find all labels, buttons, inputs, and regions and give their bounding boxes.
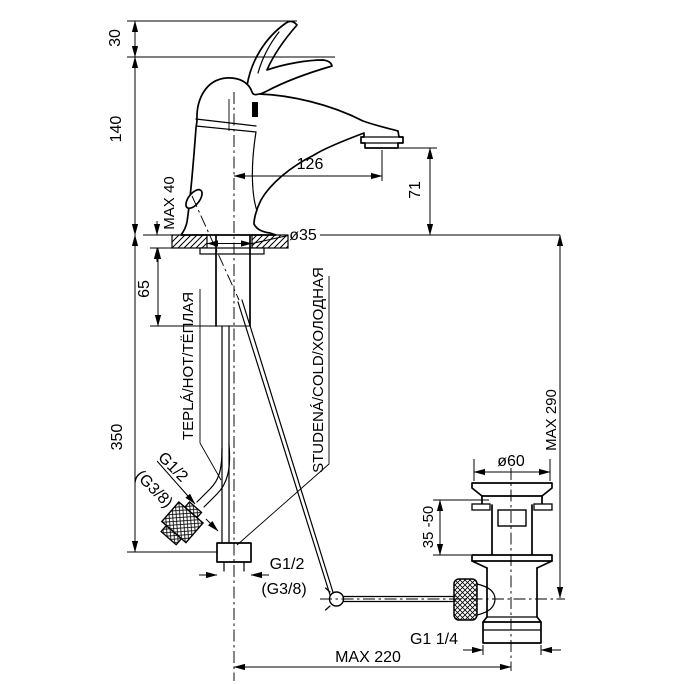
drain-thread-label: G1 1/4 (410, 631, 458, 648)
dim-71-label: 71 (407, 181, 424, 199)
shank-thread-label: G1/2 (270, 556, 305, 573)
gasket-tab-left (472, 504, 490, 510)
dim-30-label: 30 (107, 29, 124, 47)
dim-dia35-label: ø35 (289, 227, 317, 244)
dim-65-label: 65 (136, 280, 153, 298)
nut-bevel-right (537, 561, 552, 568)
mounting-washer (200, 248, 264, 254)
dim-dia60-label: ø60 (497, 453, 525, 470)
dim-max40-label: MAX 40 (161, 176, 178, 229)
shank-thread-alt-label: (G3/8) (261, 581, 306, 598)
drain-tailpiece (483, 622, 541, 643)
lever-handle (247, 21, 332, 96)
faucet-dimension-drawing: 30 140 350 MAX 40 65 126 ø35 71 TEPLÁ/HO… (0, 0, 684, 684)
technical-drawing-page: 30 140 350 MAX 40 65 126 ø35 71 TEPLÁ/HO… (0, 0, 684, 684)
body-outline (181, 78, 403, 235)
deck-hatch-left (172, 235, 207, 248)
hose-thread-label: G1/2 (154, 449, 191, 486)
gasket-tab-right (534, 504, 552, 510)
hot-label-leader (200, 289, 221, 480)
dim-350-label: 350 (109, 424, 126, 451)
dim-3550-label: 35 -50 (420, 506, 437, 549)
overflow-window (498, 510, 526, 526)
knurled-rod-nut (454, 579, 477, 620)
dim-140-label: 140 (108, 116, 125, 143)
hot-water-label: TEPLÁ/HOT/ТЁПЛАЯ (180, 292, 197, 440)
cold-water-label: STUDENÁ/COLD/ХОЛОДНАЯ (310, 267, 327, 473)
drain-flange (472, 483, 552, 496)
faucet-body (181, 21, 403, 235)
rod-bracket-arc (477, 584, 495, 615)
drain-lock-nut (472, 555, 552, 561)
handle-set-screw (252, 102, 258, 117)
countertop-section (172, 235, 288, 254)
dim-max290-label: MAX 290 (543, 389, 560, 451)
supply-pipes (150, 236, 251, 571)
hot-hose-right-edge (204, 445, 230, 507)
dim-max220-label: MAX 220 (335, 649, 401, 666)
nut-bevel-left (472, 561, 487, 568)
drain-assembly (454, 483, 552, 643)
dim-126-label: 126 (297, 156, 324, 173)
hose-thread-leader-2 (206, 519, 218, 531)
